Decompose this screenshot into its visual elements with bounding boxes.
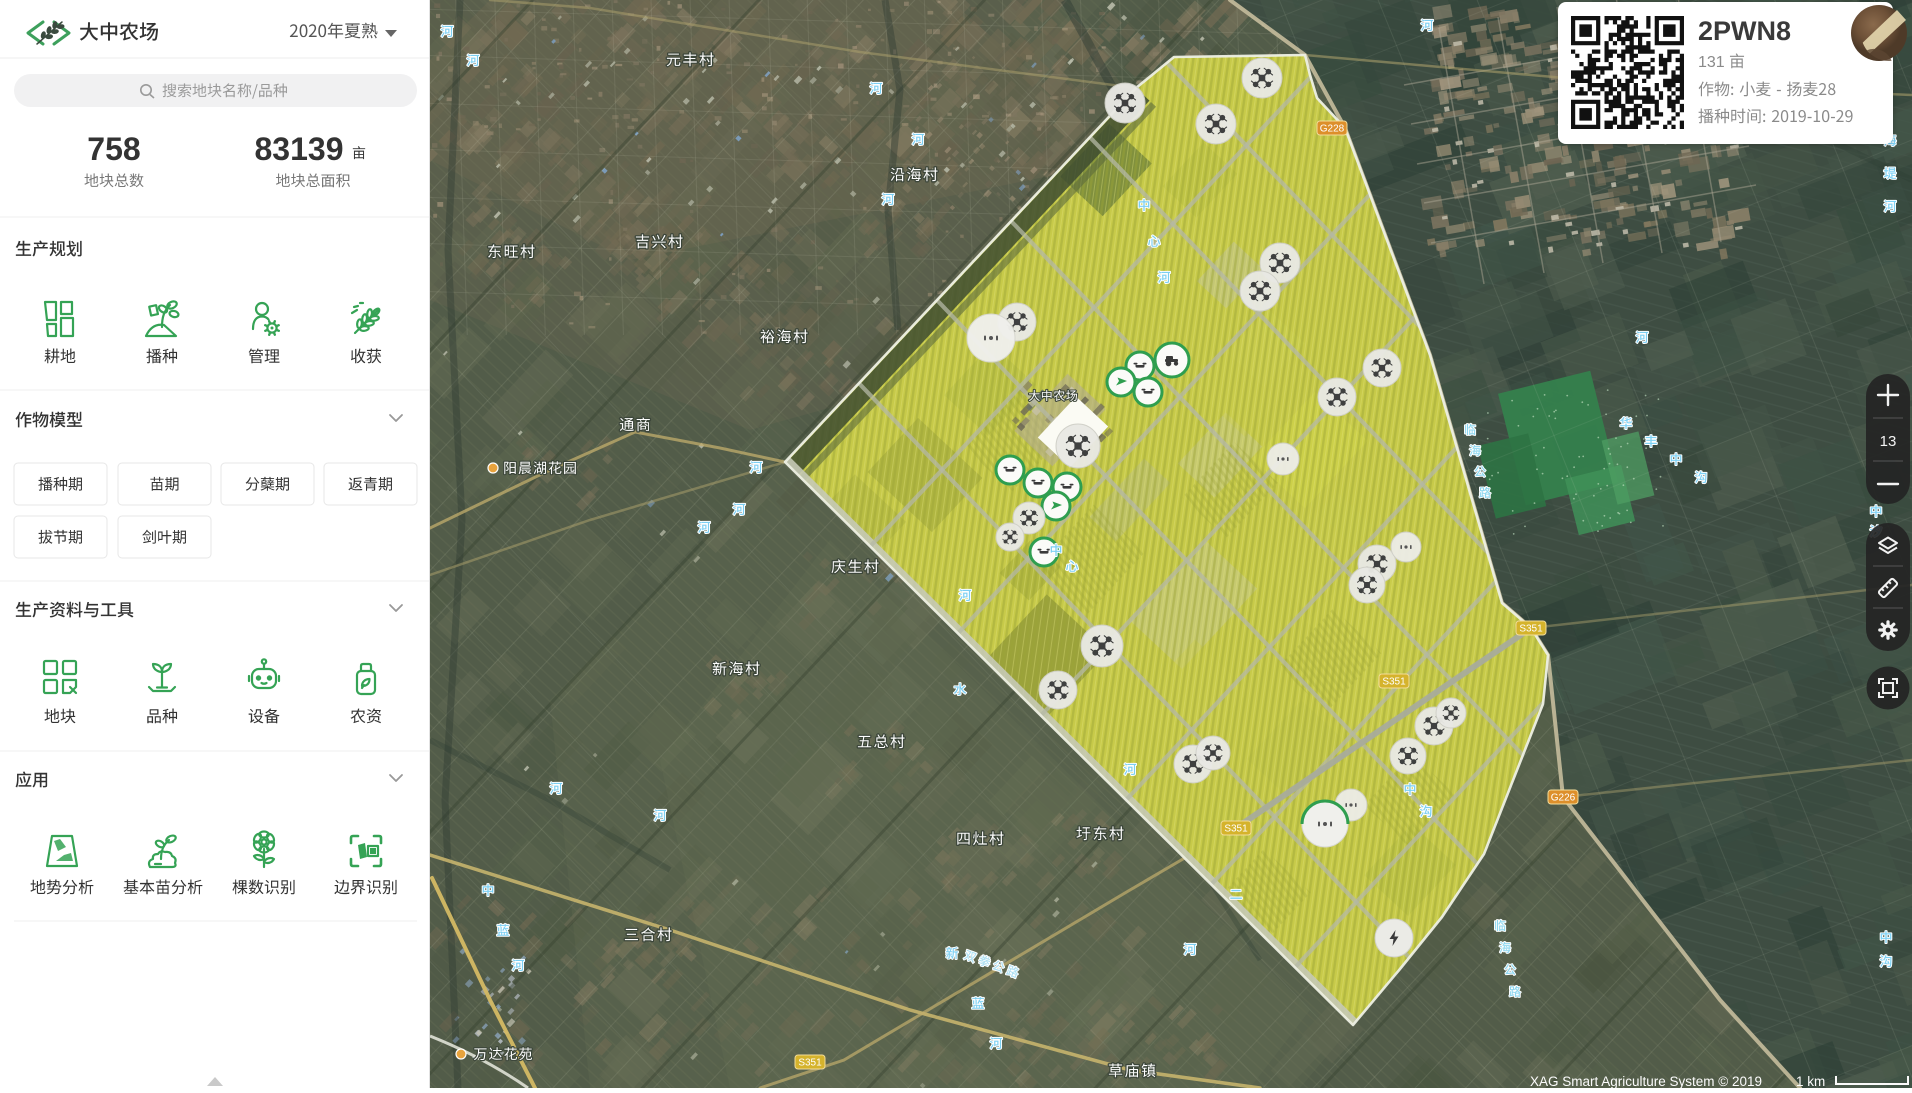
svg-text:758: 758 (87, 131, 140, 167)
svg-text:G226: G226 (1551, 793, 1576, 804)
svg-text:XAG Smart Agriculture System ©: XAG Smart Agriculture System © 2019 (1530, 1074, 1762, 1088)
svg-text:G228: G228 (1320, 124, 1345, 135)
svg-text:S351: S351 (1382, 677, 1406, 688)
svg-text:83139: 83139 (255, 131, 344, 167)
svg-text:1 km: 1 km (1796, 1074, 1825, 1088)
svg-text:S351: S351 (1224, 824, 1248, 835)
svg-text:2PWN8: 2PWN8 (1698, 16, 1791, 46)
svg-text:131: 131 (1698, 54, 1725, 71)
svg-text:S351: S351 (1519, 624, 1543, 635)
svg-text:13: 13 (1880, 433, 1897, 450)
svg-text:S351: S351 (798, 1058, 822, 1069)
